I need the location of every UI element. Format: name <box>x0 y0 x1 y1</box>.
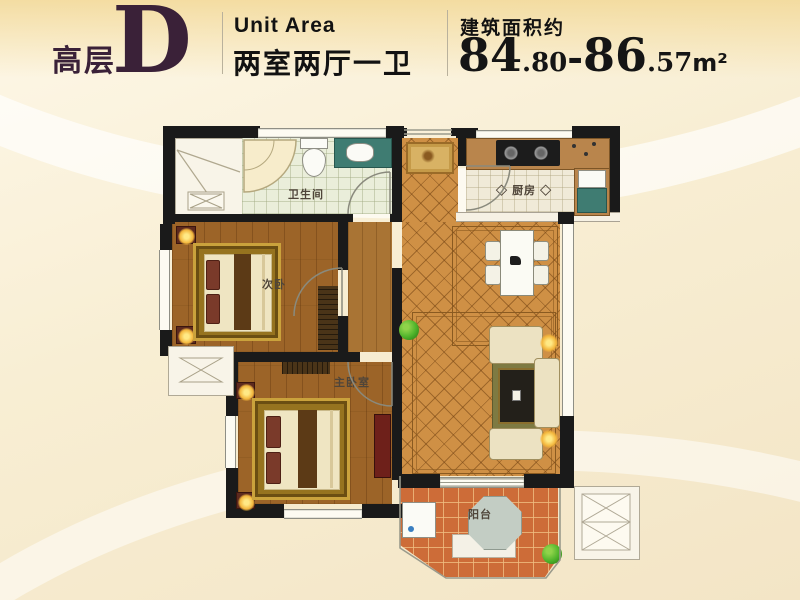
pillow <box>206 260 220 290</box>
master-bottom-window <box>284 509 362 519</box>
sink-basin-icon <box>346 143 374 162</box>
area-value: 84.80-86.57m² <box>458 28 728 82</box>
bed-foldline <box>262 254 265 330</box>
wall-segment <box>226 352 360 362</box>
coffee-table-item <box>512 390 521 401</box>
kitchen-label-text: 厨房 <box>512 185 536 197</box>
wall-segment <box>338 316 348 356</box>
ac-platform <box>168 346 234 396</box>
pillow <box>206 294 220 324</box>
utensil-icon <box>584 152 588 156</box>
label-decor: ◇ <box>540 185 552 197</box>
area-dec2: .57 <box>647 48 692 78</box>
wall-segment <box>338 222 348 270</box>
dining-chair <box>485 265 501 285</box>
unit-area-en-label: Unit Area <box>234 14 336 38</box>
area-int1: 84 <box>458 28 522 82</box>
label-decor: ◇ <box>496 185 508 197</box>
wall-segment <box>392 358 402 480</box>
tier-label: 高层 <box>52 36 116 80</box>
floorplan-poster: 高层 D Unit Area 两室两厅一卫 建筑面积约 84.80-86.57m… <box>0 0 800 600</box>
utensil-icon <box>592 142 596 146</box>
floor-lamp-icon <box>540 430 558 448</box>
second-bedroom-label: 次卧 <box>262 276 286 292</box>
dining-chair <box>533 265 549 285</box>
burner-icon <box>504 146 518 160</box>
dining-living-window <box>562 224 574 416</box>
dining-chair <box>485 241 501 261</box>
wall-segment <box>160 224 172 250</box>
entry-threshold <box>404 130 452 134</box>
floor-lamp-icon <box>540 334 558 352</box>
wall-segment <box>163 214 353 222</box>
master-bedroom-label: 主卧室 <box>334 374 370 390</box>
plant-icon <box>542 544 562 564</box>
unit-letter: D <box>112 0 192 86</box>
area-unit: m² <box>692 49 728 77</box>
washing-machine-icon <box>402 502 436 538</box>
wall-segment <box>398 474 440 488</box>
corridor-floor <box>348 222 392 352</box>
utensil-icon <box>572 144 576 148</box>
wardrobe <box>282 362 330 374</box>
wall-segment <box>456 128 478 138</box>
bed-foldline <box>330 410 333 488</box>
loveseat-bottom <box>489 428 543 460</box>
master-side-window <box>225 416 236 468</box>
wardrobe <box>318 286 338 350</box>
teapot-icon <box>510 256 521 265</box>
unit-layout-label: 两室两厅一卫 <box>233 42 413 82</box>
bathroom-window <box>258 128 386 138</box>
wall-segment <box>558 212 574 224</box>
shaft-box <box>574 486 640 560</box>
burner-icon <box>534 146 548 160</box>
balcony-sliding-door <box>440 477 524 488</box>
bathroom-label: 卫生间 <box>288 186 324 202</box>
pillow <box>266 452 281 484</box>
dining-chair <box>533 241 549 261</box>
area-dec1: .80 <box>522 48 567 78</box>
area-int2: 86 <box>583 28 647 82</box>
utility-room-floor <box>175 138 244 216</box>
pillow <box>266 416 281 448</box>
washer-dial <box>408 526 414 532</box>
sofa-right <box>534 358 560 428</box>
wall-segment <box>524 474 572 488</box>
kitchen-label: ◇ 厨房 ◇ <box>496 182 552 198</box>
wall-segment <box>163 126 260 138</box>
bed-runner <box>298 410 317 488</box>
header-divider <box>447 10 448 76</box>
bed-runner <box>234 254 251 330</box>
area-dash: - <box>567 35 583 80</box>
header-divider <box>222 12 223 74</box>
plant-icon <box>399 320 419 340</box>
kitchen-sink-icon <box>577 188 607 213</box>
wall-segment <box>163 126 175 224</box>
balcony-label: 阳台 <box>468 506 492 522</box>
wall-segment <box>392 136 402 222</box>
entry-door-jamb <box>400 128 407 136</box>
entry-mat-medallion <box>421 149 435 163</box>
second-bedroom-window <box>159 250 170 330</box>
wall-segment <box>392 268 402 358</box>
wall-segment <box>458 138 466 166</box>
tv-cabinet <box>374 414 391 478</box>
appliance-icon <box>578 170 606 188</box>
wall-segment <box>226 504 284 518</box>
